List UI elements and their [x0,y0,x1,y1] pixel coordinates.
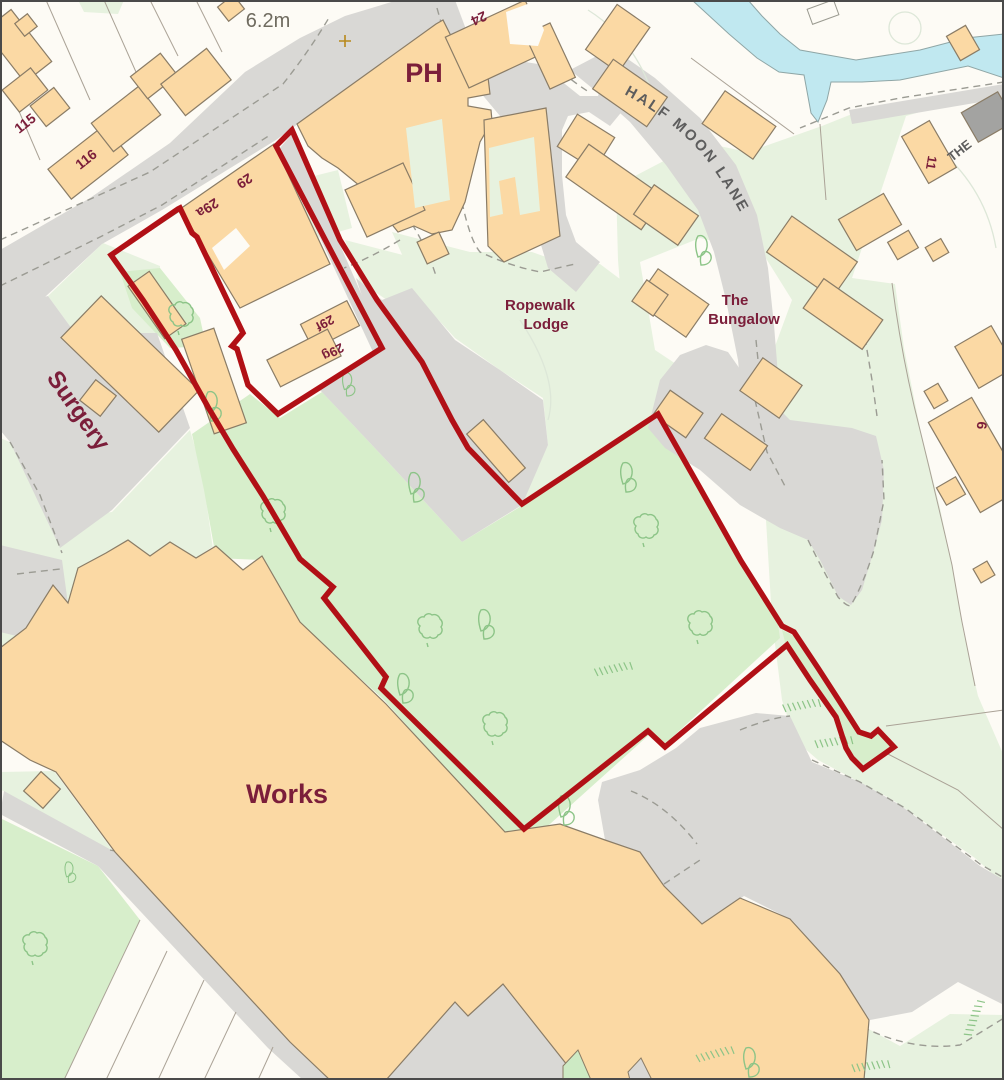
svg-text:PH: PH [405,58,443,88]
svg-text:Lodge: Lodge [524,316,569,333]
svg-text:The: The [722,292,749,309]
svg-text:6.2m: 6.2m [246,10,290,32]
svg-text:Ropewalk: Ropewalk [505,297,576,314]
svg-text:11: 11 [923,155,940,171]
svg-text:6: 6 [974,421,991,430]
svg-text:Works: Works [246,779,328,809]
svg-text:Bungalow: Bungalow [708,311,780,328]
